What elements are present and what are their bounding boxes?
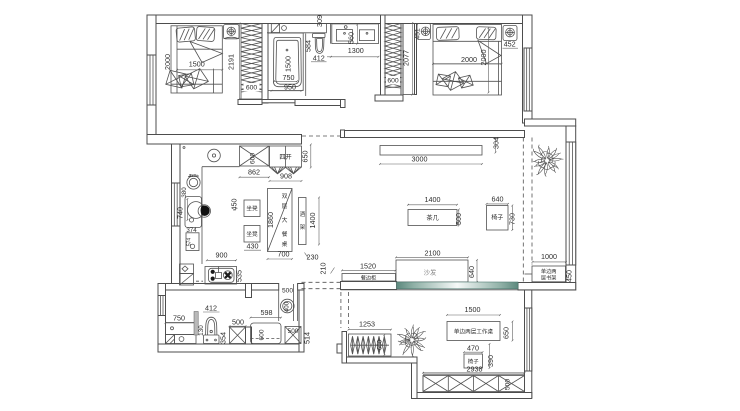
svg-text:层书架: 层书架 [541,274,557,282]
svg-text:650: 650 [502,327,511,339]
svg-text:700: 700 [278,250,290,259]
svg-text:3000: 3000 [412,154,428,163]
svg-text:535: 535 [235,270,244,282]
svg-text:2191: 2191 [227,54,236,70]
svg-text:600: 600 [377,339,384,350]
svg-text:坐凳: 坐凳 [246,230,258,238]
svg-text:560: 560 [346,32,355,44]
svg-text:1400: 1400 [308,213,317,229]
svg-text:500: 500 [454,213,463,225]
svg-text:730: 730 [507,213,516,225]
svg-text:750: 750 [173,313,185,322]
svg-text:380: 380 [189,173,197,178]
svg-text:908: 908 [280,172,292,181]
svg-text:1500: 1500 [465,305,481,314]
svg-text:500: 500 [232,318,244,327]
svg-text:四开: 四开 [279,154,291,161]
svg-text:640: 640 [467,266,476,278]
svg-text:750: 750 [283,73,295,82]
svg-text:坐凳: 坐凳 [246,205,258,213]
svg-text:380: 380 [181,187,188,198]
svg-text:桌: 桌 [282,240,288,248]
svg-text:600: 600 [259,329,266,340]
svg-text:1253: 1253 [359,320,375,329]
svg-text:412: 412 [313,53,325,62]
svg-text:500: 500 [282,288,293,295]
svg-text:2000: 2000 [479,50,488,66]
svg-text:900: 900 [216,251,228,260]
svg-text:1400: 1400 [425,195,441,204]
svg-text:130: 130 [198,325,205,336]
svg-text:餐: 餐 [282,230,288,238]
svg-text:500: 500 [505,379,512,391]
svg-text:单边两层工作桌: 单边两层工作桌 [454,328,494,336]
svg-text:862: 862 [248,168,260,177]
svg-text:412: 412 [205,304,217,313]
svg-text:451: 451 [415,28,422,40]
svg-text:584: 584 [304,40,313,52]
svg-text:598: 598 [261,308,273,317]
svg-text:椅子: 椅子 [491,214,503,222]
svg-text:1000: 1000 [541,252,557,261]
svg-text:2077: 2077 [402,50,411,66]
svg-text:230: 230 [307,253,319,262]
svg-text:650: 650 [300,151,309,163]
svg-text:架: 架 [300,224,306,231]
svg-text:酒: 酒 [300,210,306,218]
svg-text:茶几: 茶几 [426,214,438,222]
svg-text:1300: 1300 [348,46,364,55]
svg-text:514: 514 [302,332,311,344]
svg-text:1520: 1520 [360,261,376,270]
svg-text:640: 640 [492,194,504,203]
svg-text:1860: 1860 [266,212,275,228]
svg-text:2000: 2000 [461,55,477,64]
svg-text:600: 600 [250,153,257,165]
svg-text:2938: 2938 [467,364,483,373]
svg-text:430: 430 [247,242,259,251]
svg-text:500: 500 [288,328,299,335]
svg-text:309: 309 [315,15,324,27]
svg-text:400: 400 [284,301,291,312]
svg-text:沙发: 沙发 [424,268,437,277]
svg-text:2000: 2000 [163,54,172,70]
svg-text:1500: 1500 [189,60,205,69]
svg-text:单边两: 单边两 [541,267,557,275]
svg-text:层: 层 [282,203,288,210]
svg-text:600: 600 [387,78,399,85]
svg-text:354: 354 [218,332,227,344]
svg-text:大: 大 [282,216,288,224]
svg-text:950: 950 [284,82,296,91]
svg-text:470: 470 [467,343,479,352]
svg-text:双: 双 [282,193,288,200]
svg-text:452: 452 [504,39,516,48]
svg-text:1500: 1500 [283,56,292,72]
svg-text:2100: 2100 [425,248,441,257]
svg-text:740: 740 [175,207,184,219]
svg-text:390: 390 [486,355,495,367]
svg-text:210: 210 [318,263,327,275]
svg-text:574: 574 [187,238,193,247]
svg-text:餐边柜: 餐边柜 [361,274,377,282]
svg-text:450: 450 [565,270,574,282]
svg-text:600: 600 [246,85,258,92]
svg-text:450: 450 [230,199,239,211]
